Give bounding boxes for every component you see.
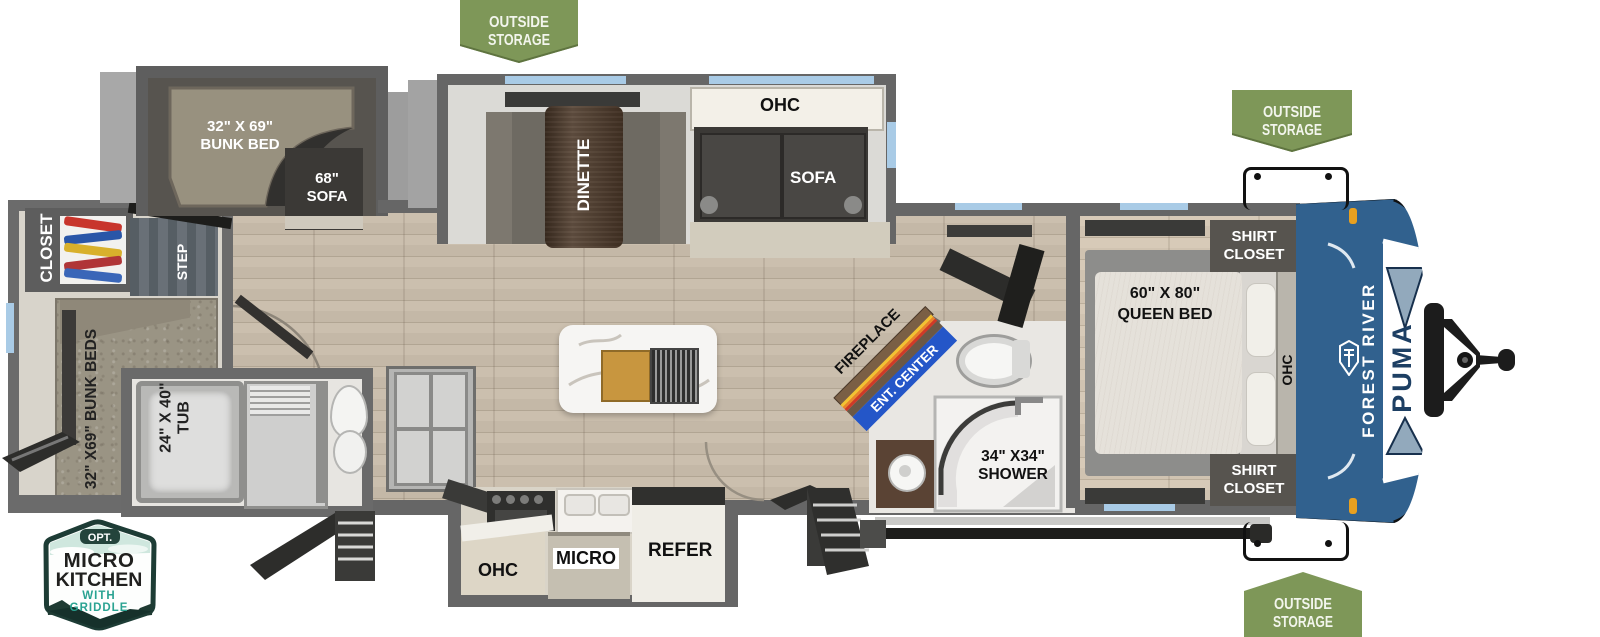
svg-text:OUTSIDE: OUTSIDE — [489, 14, 549, 31]
svg-text:STORAGE: STORAGE — [488, 32, 550, 49]
svg-text:KITCHEN: KITCHEN — [56, 569, 143, 591]
svg-text:STORAGE: STORAGE — [1262, 122, 1322, 139]
svg-text:WITH: WITH — [82, 590, 115, 602]
svg-text:OUTSIDE: OUTSIDE — [1263, 104, 1321, 121]
svg-text:GRIDDLE: GRIDDLE — [70, 602, 129, 614]
svg-text:OPT.: OPT. — [88, 532, 112, 544]
svg-text:OUTSIDE: OUTSIDE — [1274, 596, 1332, 613]
svg-text:STORAGE: STORAGE — [1273, 614, 1333, 631]
